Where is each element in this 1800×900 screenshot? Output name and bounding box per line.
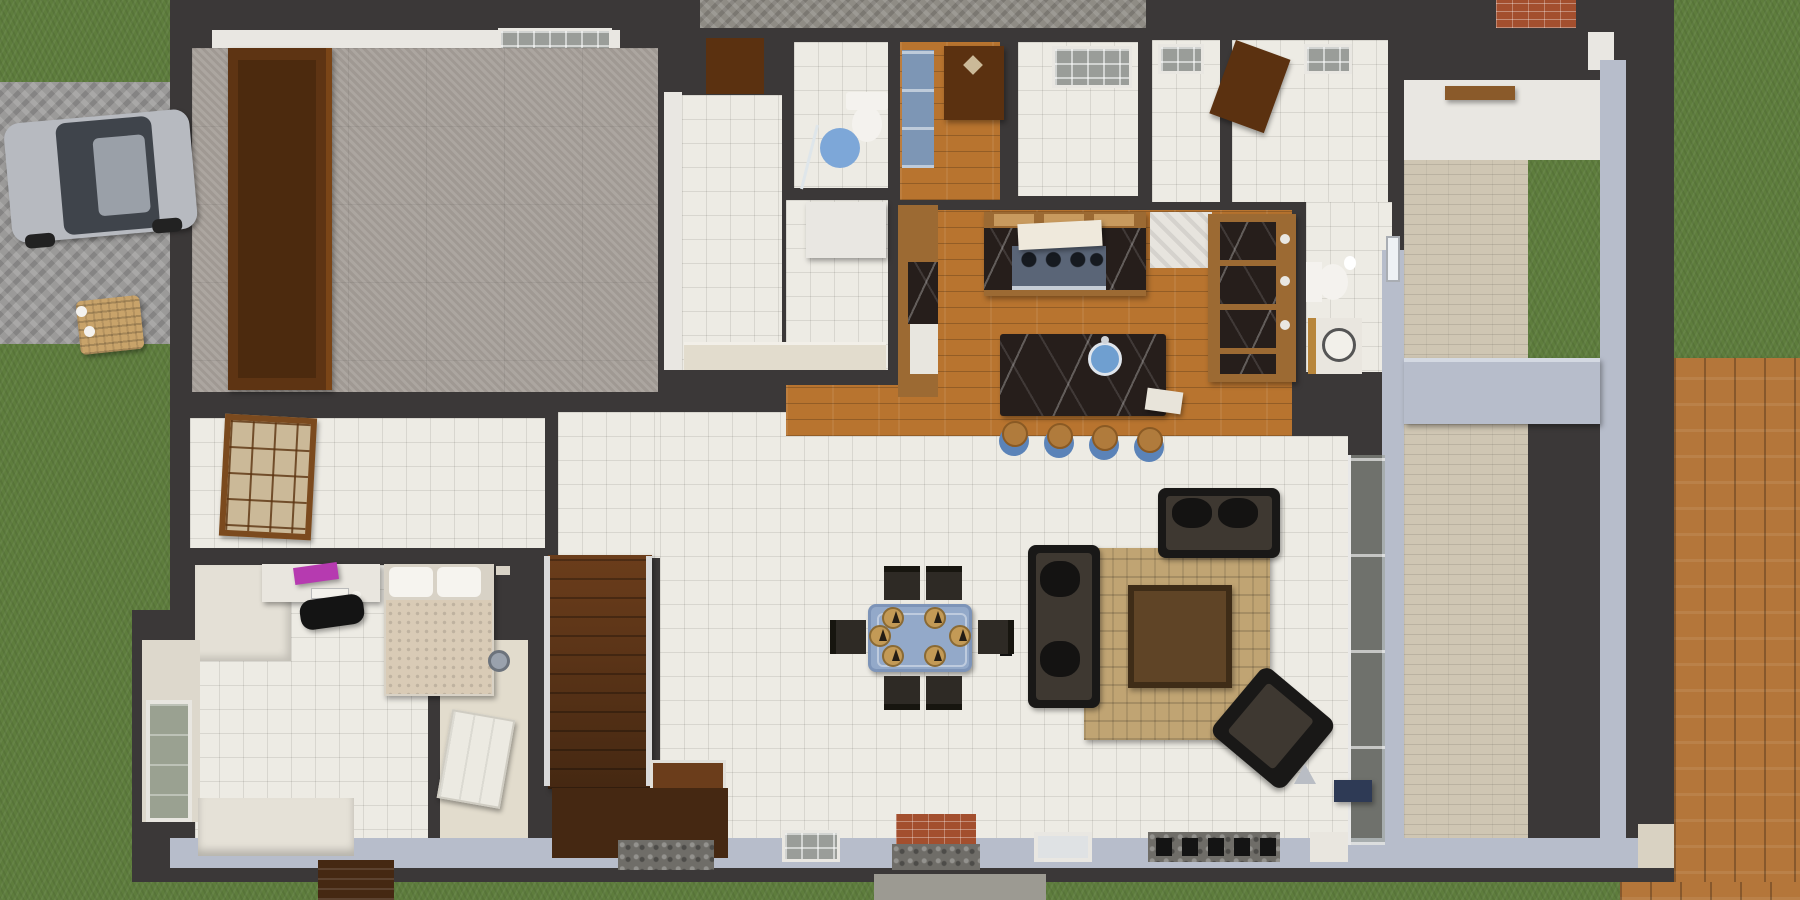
wood-deck [1674, 358, 1800, 900]
stool-seat [1137, 427, 1163, 453]
courtyard-east-wallface [1600, 60, 1626, 845]
genkan-step [198, 798, 354, 856]
place-setting [882, 645, 904, 667]
shower-head [488, 650, 510, 672]
fireplace-brick [896, 814, 976, 846]
door-diamond-inlay [963, 55, 983, 75]
plate-wedge [879, 629, 887, 641]
utility-cabinet [806, 202, 886, 258]
car-mirror [169, 121, 182, 130]
outdoor-mug [76, 306, 87, 317]
toilet-room-window [1386, 236, 1400, 282]
corner-wall-niche [1638, 824, 1674, 868]
corridor-floor-b [660, 412, 786, 438]
wall-sconce [496, 566, 510, 575]
pantry-shelf-bar [1220, 260, 1276, 266]
courtyard-cross-beam [1404, 358, 1600, 424]
dining-chair [884, 566, 920, 600]
pantry-jar [1280, 276, 1290, 286]
utility-door [706, 38, 764, 94]
rear-window-2 [1034, 832, 1092, 862]
wardrobe-panel [238, 60, 316, 378]
top-wall-left [170, 0, 700, 30]
place-setting [869, 625, 891, 647]
sofa-cushion [1040, 561, 1080, 597]
front-door [944, 46, 1004, 120]
grill-grate [1208, 838, 1224, 856]
wardrobe [228, 48, 332, 390]
stool-seat [1002, 421, 1028, 447]
car [2, 102, 201, 258]
dining-chair [926, 676, 962, 710]
coffee-table [1128, 585, 1232, 688]
plate-wedge [892, 649, 900, 661]
cutting-board [1017, 220, 1102, 250]
bed [384, 564, 494, 696]
place-setting [924, 607, 946, 629]
speaker-pyramid [1294, 764, 1316, 784]
stair-rail-right [646, 556, 652, 786]
bar-stool [1134, 432, 1164, 462]
navy-storage-box [1334, 780, 1372, 802]
wicker-bench [75, 295, 144, 355]
kitchen-left-counter-front [910, 324, 938, 374]
island-round-sink [1088, 342, 1122, 376]
place-setting [949, 625, 971, 647]
bed-blanket [386, 600, 492, 694]
fireplace-stone-base [892, 844, 980, 870]
rear-window-1 [782, 830, 840, 862]
dining-chair [830, 620, 866, 654]
sofa-cushion [1040, 641, 1080, 677]
car-wheel [24, 232, 55, 249]
dining-chair [926, 566, 962, 600]
pantry-shelf-bar [1220, 304, 1276, 310]
pillow [389, 567, 433, 597]
room-c-window [1304, 44, 1352, 74]
grill-grate [1156, 838, 1172, 856]
loveseat [1158, 488, 1280, 558]
pillow [437, 567, 481, 597]
pantry-shelf-bar [1220, 348, 1276, 354]
utility-room-floor-a [682, 95, 782, 370]
sofa-three-seat [1028, 545, 1100, 708]
front-patio-bricks [700, 0, 1146, 30]
room-b-window [1158, 44, 1204, 74]
top-wall-corner [1576, 0, 1674, 30]
outdoor-mug [84, 326, 95, 337]
bar-stool [999, 426, 1029, 456]
outdoor-brown-steps [318, 860, 394, 900]
floorplan-render[interactable] [0, 0, 1800, 900]
utility-ledge [684, 342, 886, 370]
kitchen-island [1000, 334, 1166, 416]
toilet-paper-holder [1344, 256, 1356, 270]
bar-stool [1089, 430, 1119, 460]
top-wall-right [1146, 0, 1496, 30]
shoji-sliding-door [219, 414, 317, 541]
island-faucet [1101, 336, 1109, 344]
dining-chair [884, 676, 920, 710]
stair-rail-left [544, 556, 550, 786]
loveseat-cushion [1218, 498, 1258, 528]
stair-gravel-strip [618, 840, 714, 870]
place-setting [924, 645, 946, 667]
pergola-wood-beam [1445, 86, 1515, 100]
dining-chair [978, 620, 1014, 654]
bar-stool [1044, 428, 1074, 458]
brick-planter [1496, 0, 1576, 28]
back-porch-step [874, 874, 1046, 900]
staircase [548, 555, 652, 789]
toilet2-bowl [1318, 264, 1348, 300]
genkan-glass-door [146, 700, 192, 822]
plate-wedge [892, 611, 900, 623]
stool-seat [1047, 423, 1073, 449]
plate-wedge [934, 649, 942, 661]
car-roof [92, 134, 151, 216]
courtyard-paver-path [1404, 160, 1528, 845]
rear-grill [1148, 832, 1280, 862]
living-east-wallface [1382, 250, 1404, 845]
kitchen-wood-strip [786, 385, 898, 436]
vanity-basin [1322, 328, 1356, 362]
grill-grate [1234, 838, 1250, 856]
pantry-shelf [1208, 214, 1296, 382]
corridor-floor [558, 412, 660, 558]
pantry-chevron-door [1150, 212, 1212, 268]
stool-seat [1092, 425, 1118, 451]
courtyard-grass [1528, 160, 1600, 368]
plate-wedge [934, 611, 942, 623]
shower-mat [820, 128, 860, 168]
plate-wedge [959, 629, 967, 641]
kitchen-left-counter-marble [908, 262, 938, 324]
wood-deck-bottom [1620, 882, 1800, 900]
courtyard-top-wallface [1404, 80, 1626, 160]
grill-grate [1260, 838, 1276, 856]
utility-west-wallface [664, 92, 682, 370]
stove-cooktop [1012, 246, 1106, 290]
armchair-seat [1227, 682, 1314, 770]
grill-grate [1182, 838, 1198, 856]
car-wheel [152, 217, 183, 234]
pantry-jar [1280, 320, 1290, 330]
entry-mirror-cabinet [902, 50, 934, 168]
pantry-jar [1280, 234, 1290, 244]
rear-window-sill [1310, 832, 1348, 862]
room-a-window [1052, 46, 1132, 88]
loveseat-cushion [1172, 498, 1212, 528]
